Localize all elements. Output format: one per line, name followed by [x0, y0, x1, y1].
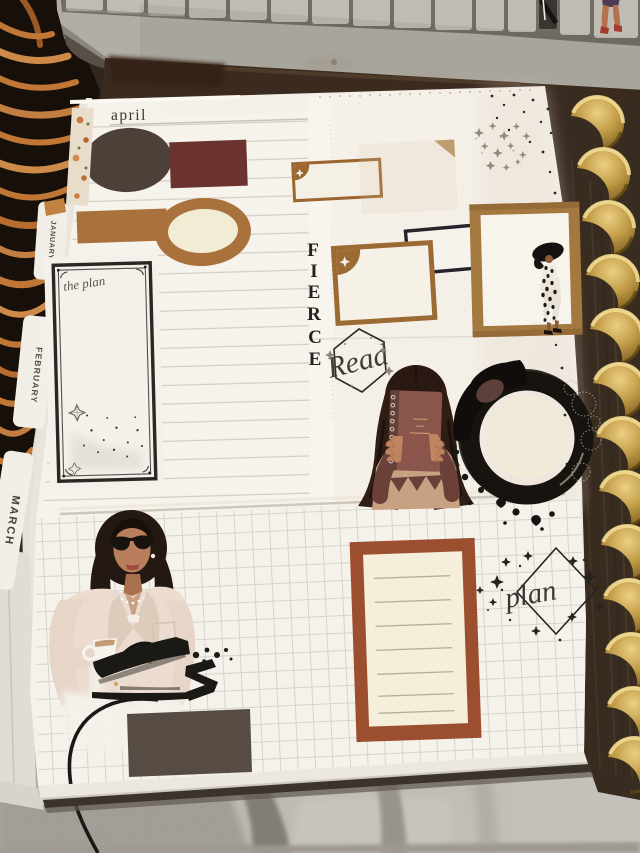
svg-text:E: E [309, 349, 322, 370]
svg-text:april: april [111, 107, 147, 124]
svg-text:I: I [310, 261, 317, 282]
svg-text:F: F [307, 240, 319, 261]
svg-text:R: R [307, 304, 321, 325]
svg-text:E: E [308, 282, 321, 303]
svg-text:C: C [308, 327, 322, 348]
